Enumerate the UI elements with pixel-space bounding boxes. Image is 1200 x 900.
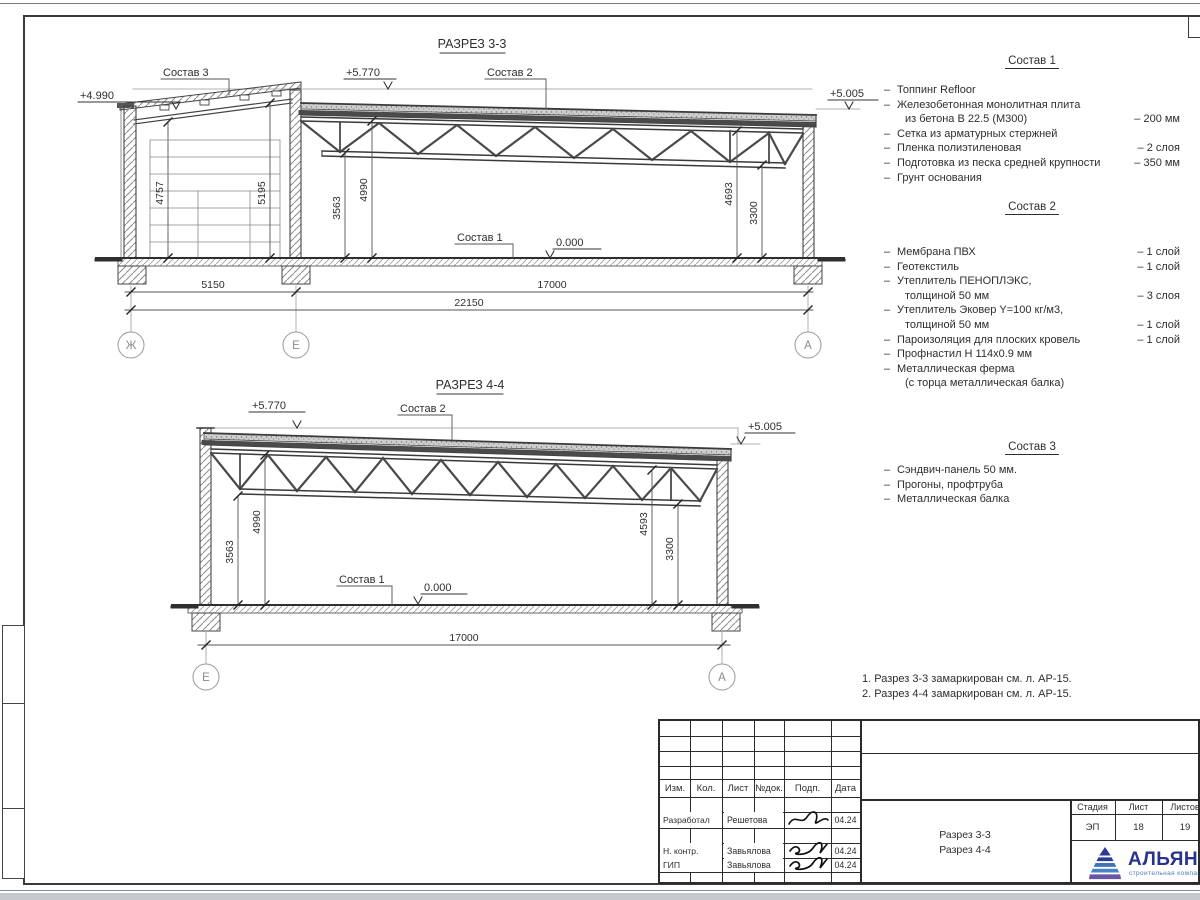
section-44-title: РАЗРЕЗ 4-4 [436, 378, 505, 392]
tb-list-header: Лист [1115, 799, 1162, 814]
section-33-title: РАЗРЕЗ 3-3 [438, 37, 507, 51]
bullet [884, 318, 905, 333]
list-item: –Грунт основания [884, 171, 1180, 186]
floor-44 [172, 605, 758, 631]
dim-5150: 5150 [201, 279, 225, 291]
composition-1-list: –Топпинг Refloor –Железобетонная монолит… [884, 83, 1180, 185]
axis-Zh-33: Ж [126, 340, 137, 352]
bullet: – [884, 156, 897, 171]
item-value: – 1 слой [1137, 333, 1180, 348]
tb-date-3: 04.24 [831, 858, 860, 872]
tb-doc-title-line2: Разрез 4-4 [939, 843, 991, 858]
item-text: Прогоны, профтруба [897, 478, 1180, 493]
bullet: – [884, 171, 897, 186]
tb-header-list: Лист [722, 779, 754, 797]
company-name: АЛЬЯНС [1128, 850, 1200, 869]
elev-4990-33: +4.990 [80, 90, 114, 102]
roof-44 [204, 433, 731, 469]
bullet: – [884, 127, 897, 142]
elev-zero-44: 0.000 [424, 582, 452, 594]
dim-22150: 22150 [454, 297, 483, 309]
item-text: Утеплитель Эковер Y=100 кг/м3, [897, 303, 1180, 318]
elev-5770-33: +5.770 [346, 67, 380, 79]
tb-date-2: 04.24 [831, 843, 860, 858]
tb-stage-value: ЭП [1070, 814, 1115, 840]
axis-A-33: А [804, 340, 812, 352]
list-item: (с торца металлическая балка) [884, 376, 1180, 391]
bullet [884, 112, 905, 127]
label-sostav1-44: Состав 1 [339, 574, 385, 586]
tb-role-nkontr: Н. контр. [660, 843, 722, 858]
composition-1-block: Состав 1 –Топпинг Refloor –Железобетонна… [884, 55, 1180, 185]
dim-4757: 4757 [154, 181, 166, 205]
company-subtitle: строительная компания [1129, 870, 1200, 877]
bullet: – [884, 83, 897, 98]
item-text: Сетка из арматурных стержней [897, 127, 1180, 142]
dim-3300-33: 3300 [748, 201, 760, 225]
logo-triangle-icon [1088, 846, 1122, 882]
composition-1-title: Состав 1 [884, 55, 1180, 67]
tb-header-ndok: №док. [754, 779, 784, 797]
bullet: – [884, 333, 897, 348]
list-item: толщиной 50 мм– 3 слоя [884, 289, 1180, 304]
tb-header-podp: Подп. [784, 779, 831, 797]
bullet: – [884, 492, 897, 507]
bullet: – [884, 478, 897, 493]
bullet [884, 376, 905, 391]
item-text: Профнастил Н 114х0.9 мм [897, 347, 1180, 362]
wall-A-44 [717, 460, 728, 605]
bullet: – [884, 463, 897, 478]
item-value: – 350 мм [1134, 156, 1180, 171]
item-text: Топпинг Refloor [897, 83, 1180, 98]
tb-list-value: 18 [1115, 814, 1162, 840]
list-item: из бетона В 22.5 (М300)– 200 мм [884, 112, 1180, 127]
tb-name-reshetova: Решетова [724, 812, 783, 828]
list-item: –Сэндвич-панель 50 мм. [884, 463, 1180, 478]
item-text: Пленка полиэтиленовая [897, 141, 1138, 156]
item-text: Грунт основания [897, 171, 1180, 186]
list-item: –Утеплитель Эковер Y=100 кг/м3, [884, 303, 1180, 318]
dim-5195: 5195 [256, 181, 268, 205]
tb-role-razrabotal: Разработал [660, 812, 722, 828]
wall-E-33 [290, 90, 301, 258]
bullet: – [884, 260, 897, 275]
item-text: (с торца металлическая балка) [905, 376, 1180, 391]
title-block: Изм. Кол. Лист №док. Подп. Дата Разработ… [658, 719, 1200, 884]
item-text: толщиной 50 мм [905, 289, 1138, 304]
item-text: Железобетонная монолитная плита [897, 98, 1180, 113]
item-text: из бетона В 22.5 (М300) [905, 112, 1134, 127]
composition-2-title-text: Состав 2 [1005, 201, 1059, 215]
item-value: – 1 слой [1137, 260, 1180, 275]
wall-E-44 [200, 428, 211, 605]
item-text: толщиной 50 мм [905, 318, 1137, 333]
item-text: Подготовка из песка средней крупности [897, 156, 1134, 171]
company-logo: АЛЬЯНС строительная компания [1070, 840, 1200, 884]
item-text: Геотекстиль [897, 260, 1137, 275]
tb-stage-header: Стадия [1070, 799, 1115, 814]
composition-3-title: Состав 3 [884, 441, 1180, 453]
item-text: Мембрана ПВХ [897, 245, 1137, 260]
dim-17000-33: 17000 [537, 279, 566, 291]
list-item: –Профнастил Н 114х0.9 мм [884, 347, 1180, 362]
dim-17000-44: 17000 [449, 632, 478, 644]
item-value: – 1 слой [1137, 245, 1180, 260]
composition-3-block: Состав 3 –Сэндвич-панель 50 мм. –Прогоны… [884, 441, 1180, 507]
bullet [884, 289, 905, 304]
composition-2-title: Состав 2 [884, 201, 1180, 213]
list-item: –Металлическая ферма [884, 362, 1180, 377]
list-item: –Мембрана ПВХ– 1 слой [884, 245, 1180, 260]
list-item: –Утеплитель ПЕНОПЛЭКС, [884, 274, 1180, 289]
dim-3300-44: 3300 [664, 537, 676, 561]
section-4-4: РАЗРЕЗ 4-4 [172, 378, 795, 690]
tb-listov-value: 19 [1162, 814, 1200, 840]
elev-5005-33: +5.005 [830, 88, 864, 100]
annex-structure-33 [117, 82, 301, 258]
dim-4990-33: 4990 [358, 178, 370, 202]
tb-name-zavyalova-1: Завьялова [724, 843, 783, 858]
tb-date-1: 04.24 [831, 812, 860, 828]
list-item: –Сетка из арматурных стержней [884, 127, 1180, 142]
dim-4693: 4693 [723, 182, 735, 206]
composition-3-list: –Сэндвич-панель 50 мм. –Прогоны, профтру… [884, 463, 1180, 507]
notes-block: 1. Разрез 3-3 замаркирован см. л. АР-15.… [862, 672, 1072, 702]
tb-name-zavyalova-2: Завьялова [724, 858, 783, 872]
composition-3-title-text: Состав 3 [1005, 441, 1059, 455]
elev-5005-44: +5.005 [748, 421, 782, 433]
composition-2-list: –Мембрана ПВХ– 1 слой –Геотекстиль– 1 сл… [884, 245, 1180, 391]
composition-2-block: Состав 2 –Мембрана ПВХ– 1 слой –Геотекст… [884, 201, 1180, 391]
item-value: – 1 слой [1137, 318, 1180, 333]
dim-4593: 4593 [638, 512, 650, 536]
tb-role-gip: ГИП [660, 858, 722, 872]
tb-doc-title-line1: Разрез 3-3 [939, 828, 991, 843]
item-text: Пароизоляция для плоских кровель [897, 333, 1137, 348]
tb-header-kol: Кол. [690, 779, 722, 797]
label-sostav2-44: Состав 2 [400, 403, 446, 415]
tb-doc-title: Разрез 3-3 Разрез 4-4 [860, 799, 1070, 884]
axis-E-44: Е [202, 672, 210, 684]
drawing-sheet: { "s33": { "title": "РАЗРЕЗ 3-3", "sosta… [0, 0, 1200, 900]
bullet: – [884, 141, 897, 156]
signature-3 [786, 854, 830, 876]
elev-5770-44: +5.770 [252, 400, 286, 412]
dim-3563-33: 3563 [331, 196, 343, 220]
list-item: –Пароизоляция для плоских кровель– 1 сло… [884, 333, 1180, 348]
section-3-3: РАЗРЕЗ 3-3 [78, 37, 878, 358]
list-item: –Топпинг Refloor [884, 83, 1180, 98]
vert-dims-44 [234, 451, 682, 609]
list-item: –Пленка полиэтиленовая– 2 слоя [884, 141, 1180, 156]
axis-A-44: А [718, 672, 726, 684]
list-item: –Прогоны, профтруба [884, 478, 1180, 493]
label-sostav2-33: Состав 2 [487, 67, 533, 79]
label-sostav1-33: Состав 1 [457, 232, 503, 244]
dim-4990-44: 4990 [251, 510, 263, 534]
tb-header-izm: Изм. [660, 779, 690, 797]
note-2: 2. Разрез 4-4 замаркирован см. л. АР-15. [862, 687, 1072, 702]
dim-3563-44: 3563 [224, 540, 236, 564]
item-text: Утеплитель ПЕНОПЛЭКС, [897, 274, 1180, 289]
list-item: –Геотекстиль– 1 слой [884, 260, 1180, 275]
tb-header-data: Дата [831, 779, 860, 797]
item-text: Металлическая балка [897, 492, 1180, 507]
bullet: – [884, 303, 897, 318]
truss-33 [301, 121, 803, 168]
bullet: – [884, 347, 897, 362]
note-1: 1. Разрез 3-3 замаркирован см. л. АР-15. [862, 672, 1072, 687]
elev-zero-33: 0.000 [556, 237, 584, 249]
item-value: – 2 слоя [1138, 141, 1180, 156]
list-item: –Подготовка из песка средней крупности– … [884, 156, 1180, 171]
list-item: –Металлическая балка [884, 492, 1180, 507]
item-value: – 3 слоя [1138, 289, 1180, 304]
bullet: – [884, 98, 897, 113]
bullet: – [884, 245, 897, 260]
list-item: –Железобетонная монолитная плита [884, 98, 1180, 113]
wall-A-33 [803, 124, 814, 258]
item-text: Металлическая ферма [897, 362, 1180, 377]
axis-E-33: Е [292, 340, 300, 352]
label-sostav3-33: Состав 3 [163, 67, 209, 79]
item-text: Сэндвич-панель 50 мм. [897, 463, 1180, 478]
composition-1-title-text: Состав 1 [1005, 55, 1059, 69]
list-item: толщиной 50 мм– 1 слой [884, 318, 1180, 333]
tb-listov-header: Листов [1162, 799, 1200, 814]
item-value: – 200 мм [1134, 112, 1180, 127]
signature-1 [786, 809, 830, 831]
bullet: – [884, 274, 897, 289]
bullet: – [884, 362, 897, 377]
